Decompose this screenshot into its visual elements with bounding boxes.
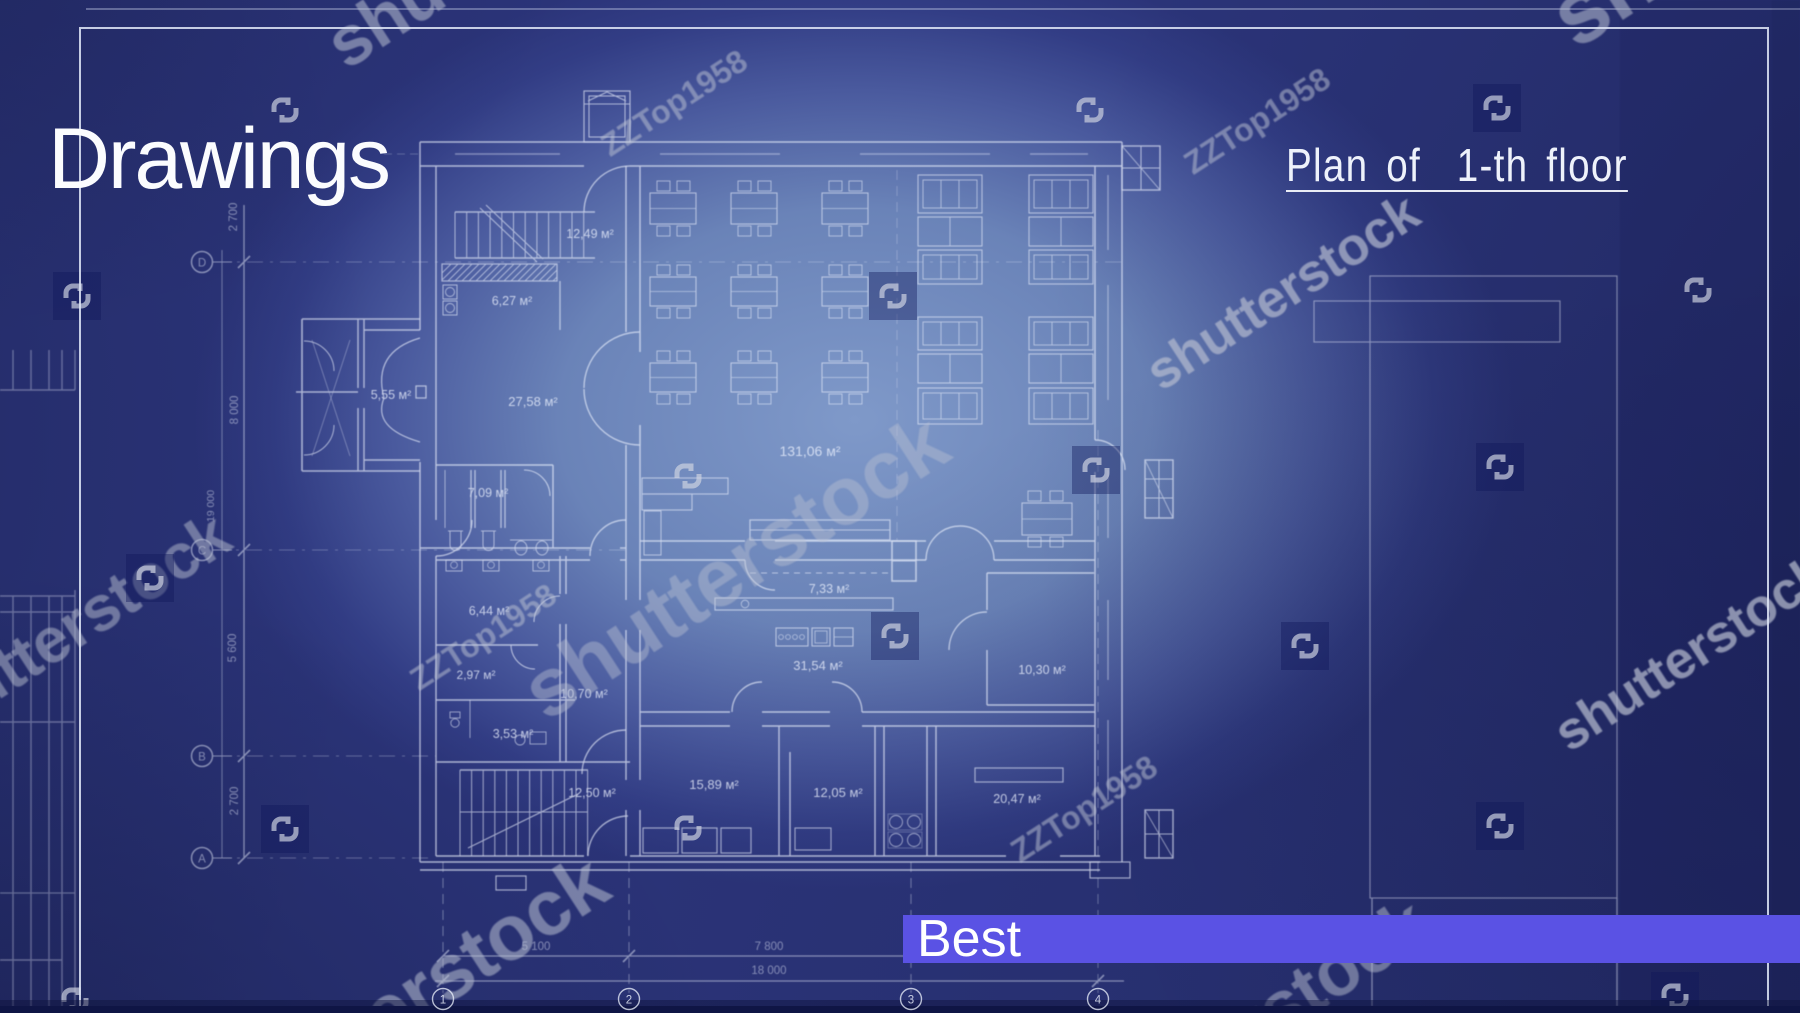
svg-text:4: 4 — [1095, 995, 1102, 1007]
svg-text:2: 2 — [626, 995, 632, 1007]
svg-text:1: 1 — [440, 995, 446, 1007]
svg-text:3: 3 — [908, 995, 914, 1007]
